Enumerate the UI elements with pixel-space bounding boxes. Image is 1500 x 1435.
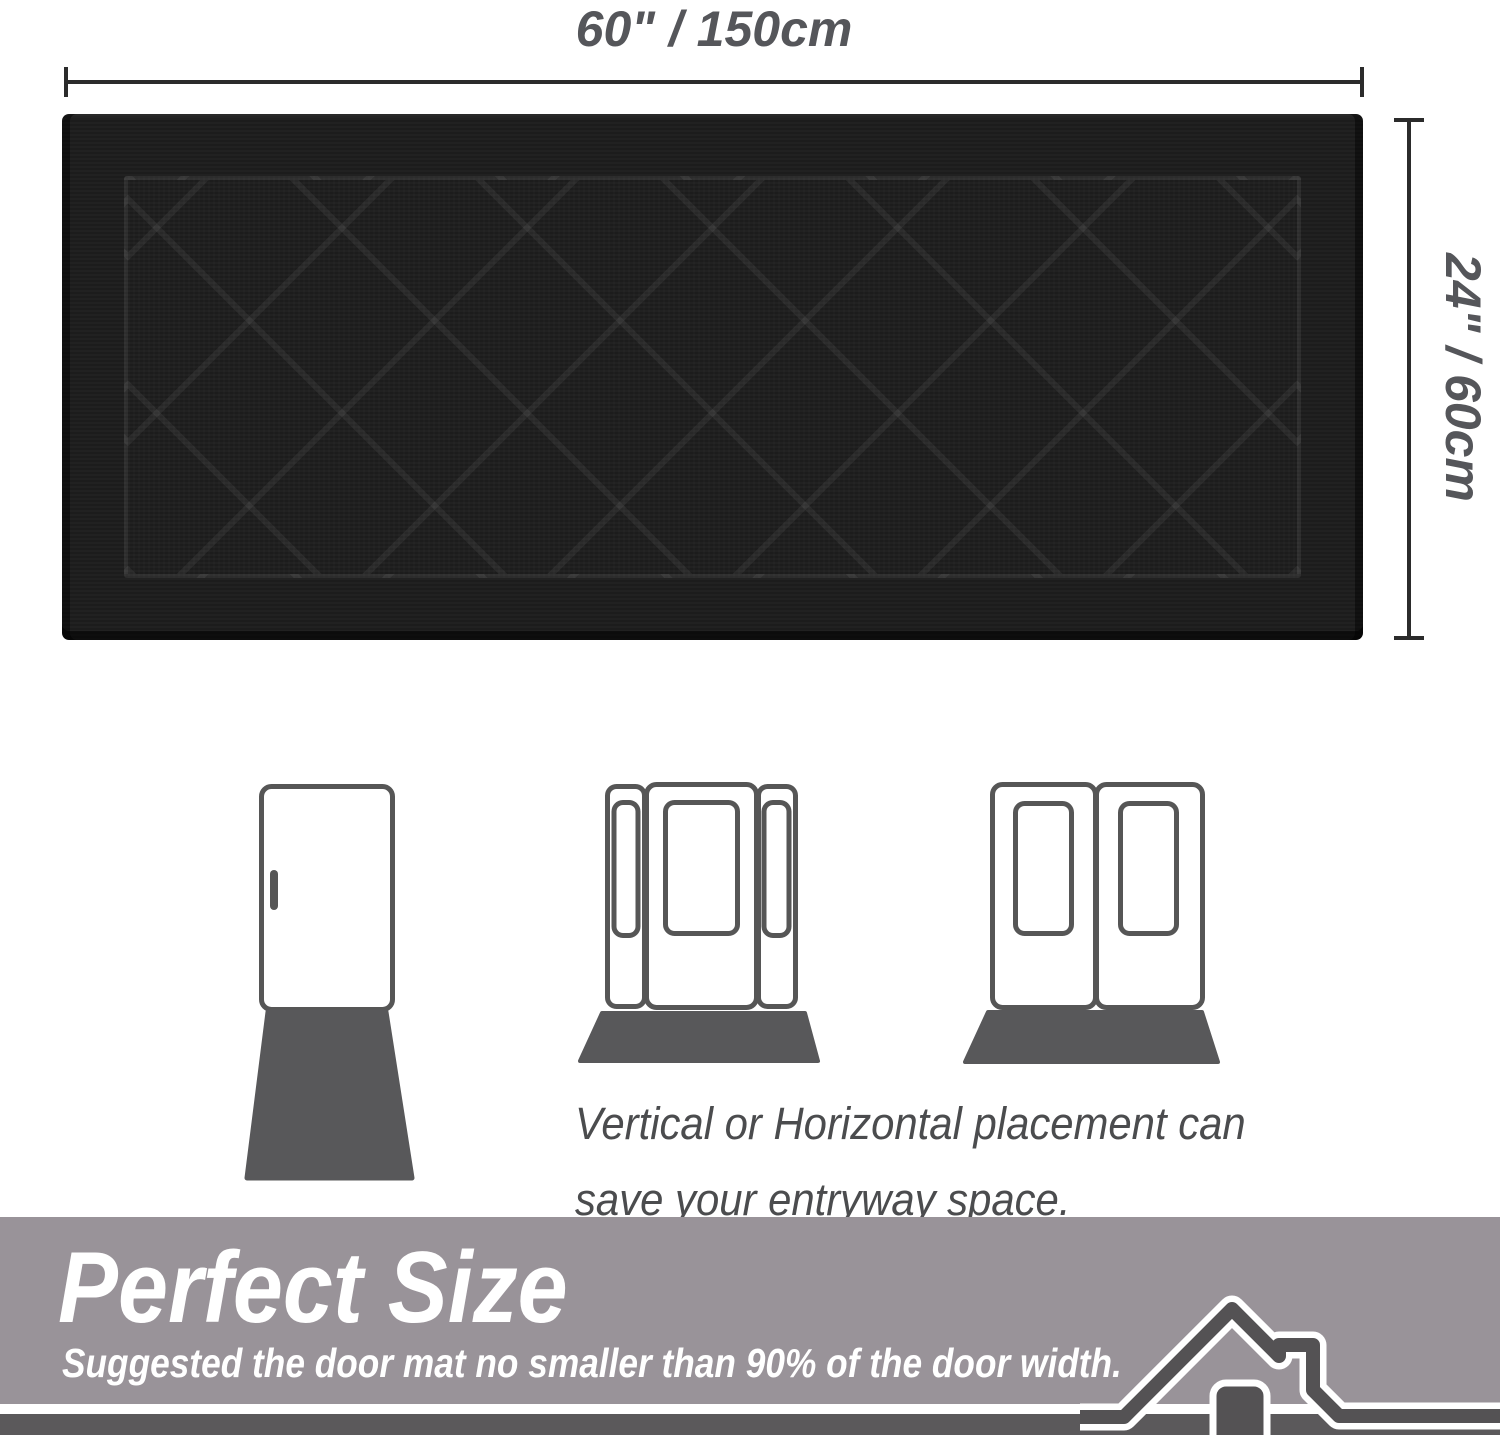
dimension-tick xyxy=(1360,67,1364,97)
door-with-sidelights-icon xyxy=(575,782,825,1067)
banner-subtitle: Suggested the door mat no smaller than 9… xyxy=(62,1340,1122,1387)
single-door-icon xyxy=(240,782,420,1182)
banner-title: Perfect Size xyxy=(58,1238,568,1339)
product-infographic: 60" / 150cm 24" / 60cm Vertical xyxy=(0,0,1500,1435)
width-dimension-line xyxy=(64,80,1364,84)
house-roof-icon xyxy=(1080,1290,1500,1435)
placement-caption: Vertical or Horizontal placement can sav… xyxy=(575,1086,1338,1238)
double-door-icon xyxy=(950,782,1230,1067)
diamond-pattern-area xyxy=(124,176,1301,578)
height-dimension-label: 24" / 60cm xyxy=(1420,114,1492,640)
door-mat-image xyxy=(62,114,1363,640)
height-dimension-line xyxy=(1407,118,1411,640)
caption-line-1: Vertical or Horizontal placement can xyxy=(575,1086,1338,1162)
dimension-tick xyxy=(64,67,68,97)
width-dimension-label: 60" / 150cm xyxy=(64,0,1364,58)
